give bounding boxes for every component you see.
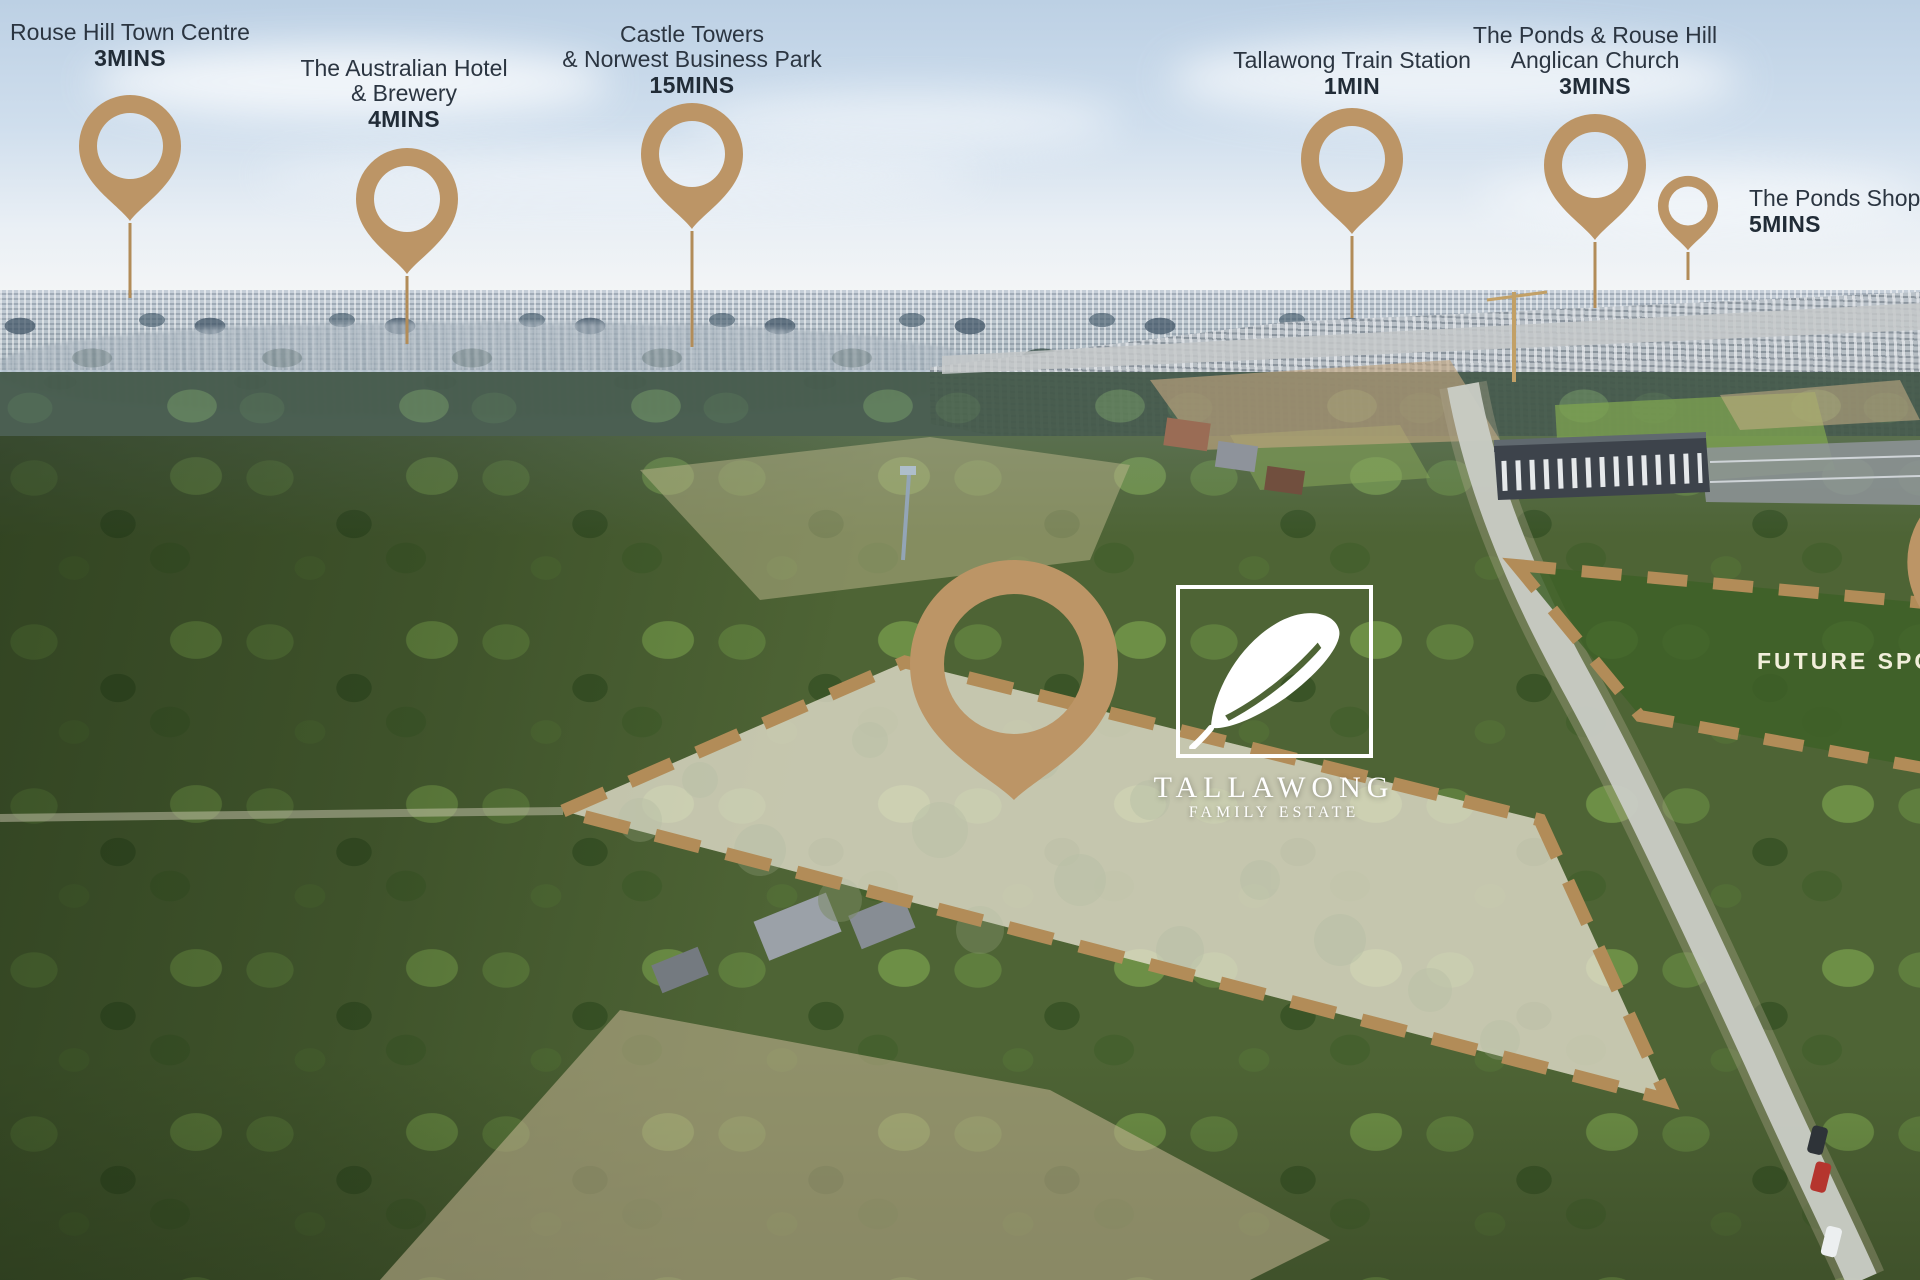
map-pin-australian-hotel-brewery (356, 148, 458, 274)
marker-name: Anglican Church (1395, 48, 1795, 73)
marker-name: The Ponds Shopping (1749, 186, 1920, 211)
marker-time: 5MINS (1749, 212, 1920, 237)
estate-name: TALLAWONG (1074, 771, 1474, 805)
marker-label-ponds-rouse-hill-anglican: The Ponds & Rouse Hill Anglican Church 3… (1395, 23, 1795, 99)
marker-time: 15MINS (492, 73, 892, 98)
marker-name: & Norwest Business Park (492, 47, 892, 72)
marker-name: Rouse Hill Town Centre (0, 20, 330, 45)
map-pin-ponds-shopping (1658, 176, 1718, 250)
future-sports-label: FUTURE SPORTS (1757, 648, 1920, 675)
map-overlay-graphics (0, 0, 1920, 1280)
map-pin-tallawong-train-station (1301, 108, 1403, 234)
marker-time: 3MINS (1395, 74, 1795, 99)
aerial-location-map: Rouse Hill Town Centre 3MINS The Austral… (0, 0, 1920, 1280)
estate-logo-frame (1176, 585, 1373, 758)
marker-label-castle-towers-norwest: Castle Towers & Norwest Business Park 15… (492, 22, 892, 98)
marker-name: Castle Towers (492, 22, 892, 47)
estate-subtitle: FAMILY ESTATE (1074, 804, 1474, 822)
feather-icon (1186, 594, 1364, 749)
marker-time: 4MINS (204, 107, 604, 132)
map-pin-ponds-rouse-hill-anglican (1544, 114, 1646, 240)
marker-name: The Ponds & Rouse Hill (1395, 23, 1795, 48)
map-pin-rouse-hill-town-centre (79, 95, 181, 221)
map-pin-castle-towers-norwest (641, 103, 743, 229)
marker-label-ponds-shopping: The Ponds Shopping 5MINS (1749, 186, 1920, 237)
